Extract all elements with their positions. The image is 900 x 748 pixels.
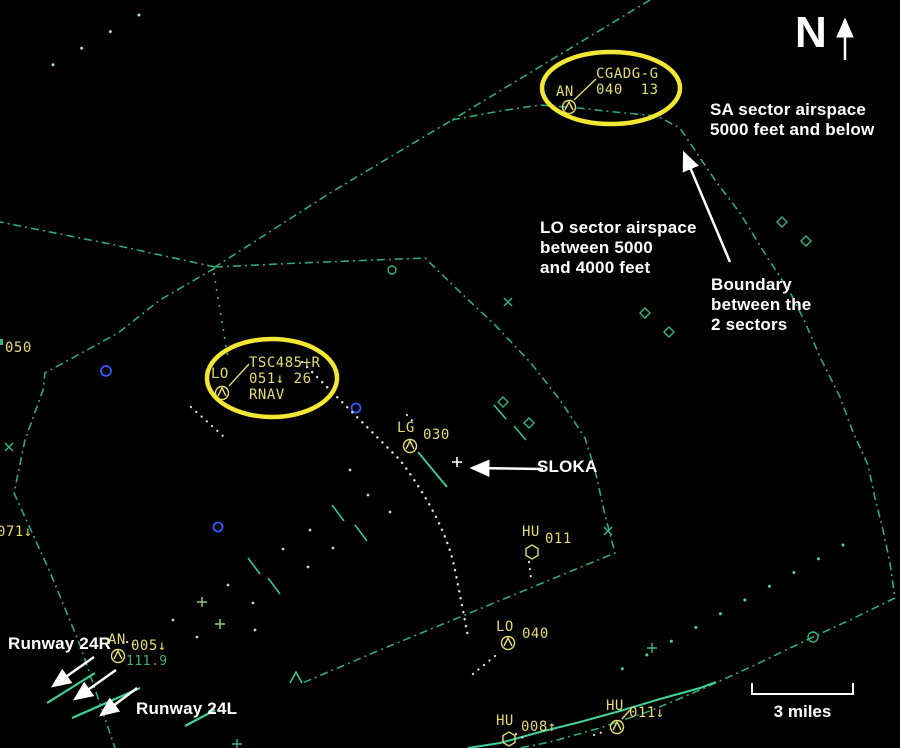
aircraft-tag-an-top[interactable]: AN	[556, 84, 574, 100]
boundary-line-west	[0, 222, 215, 267]
history-trail-nw	[25, 15, 139, 81]
route-dotted-curve	[302, 362, 468, 637]
aircraft-symbols	[112, 79, 631, 746]
annotation-lo-sector: LO sector airspace between 5000 and 4000…	[540, 218, 697, 278]
annotation-runway-24r: Runway 24R	[8, 634, 111, 654]
runway-24l-arrow	[101, 688, 137, 715]
plus-fix-markers	[197, 597, 657, 748]
trail-tsc485	[191, 407, 223, 436]
scattered-history-dots	[172, 469, 392, 639]
runway-24r-arrow-2	[75, 670, 116, 699]
edge-label-050: 050	[5, 340, 32, 356]
annotation-runway-24l: Runway 24L	[136, 699, 237, 719]
aircraft-symbol-an005[interactable]	[112, 650, 125, 663]
aircraft-symbol-lg030[interactable]	[404, 440, 417, 453]
radar-display: N SA sector airspace 5000 feet and below…	[0, 0, 900, 748]
aircraft-alt-an005[interactable]: 005↓	[131, 638, 167, 654]
aircraft-alt-hu011[interactable]: 011	[545, 531, 572, 547]
approach-tick-marks	[248, 405, 526, 594]
runway-24r-line	[47, 673, 95, 703]
aircraft-tag-hu008[interactable]: HU	[496, 713, 514, 729]
circle-fix-1	[388, 266, 396, 274]
aircraft-alt-hu008[interactable]: 008↑	[521, 719, 557, 735]
boundary-line-sa-lo	[452, 105, 895, 598]
scale-bar-label: 3 miles	[752, 702, 853, 722]
aircraft-tag-tsc485[interactable]: LO	[211, 366, 229, 382]
history-trail-se	[620, 545, 843, 670]
aircraft-tag-an005[interactable]: AN	[108, 632, 126, 648]
annotation-boundary: Boundary between the 2 sectors	[711, 275, 811, 335]
runway-24r-arrow-1	[53, 657, 94, 686]
boundary-line-sw	[14, 268, 215, 748]
aircraft-alt-lo040[interactable]: 040	[522, 626, 549, 642]
aircraft-tag-lg030[interactable]: LG	[397, 420, 415, 436]
blue-target-3	[214, 523, 223, 532]
caret-marker	[290, 672, 302, 683]
trail-hu011	[529, 562, 531, 578]
aircraft-tag-hu011b[interactable]: HU	[606, 698, 624, 714]
aircraft-tag-lo040[interactable]: LO	[496, 619, 514, 635]
aircraft-alt-hu011b[interactable]: 011↓	[629, 705, 665, 721]
aircraft-tag-hu011[interactable]: HU	[522, 524, 540, 540]
scale-bar	[752, 683, 853, 694]
edge-label-071: 071↓	[0, 524, 33, 540]
north-indicator-label: N	[795, 8, 827, 58]
aircraft-symbol-hu011[interactable]	[526, 545, 538, 559]
aircraft-symbol-lo040[interactable]	[502, 637, 515, 650]
aircraft-datablock-tsc485[interactable]: TSC485+R 051↓ 26 RNAV	[249, 355, 320, 403]
x-fix-markers	[5, 298, 612, 535]
annotation-sloka: SLOKA	[537, 457, 598, 477]
sloka-arrow	[472, 468, 543, 469]
aircraft-freq-an005[interactable]: 111.9	[126, 654, 168, 670]
trail-lo040	[468, 656, 495, 678]
edge-mark	[0, 339, 3, 345]
dotted-boundary-stub	[214, 274, 228, 358]
blue-target-1	[101, 366, 111, 376]
sloka-fix-marker	[452, 457, 462, 467]
trail-hu011b	[594, 731, 606, 735]
aircraft-datablock-an-top[interactable]: CGADG-G 040 13	[596, 66, 659, 98]
boundary-line-se	[520, 598, 895, 748]
annotation-sa-sector: SA sector airspace 5000 feet and below	[710, 100, 874, 140]
aircraft-alt-lg030[interactable]: 030	[423, 427, 450, 443]
blue-target-2	[352, 404, 361, 413]
